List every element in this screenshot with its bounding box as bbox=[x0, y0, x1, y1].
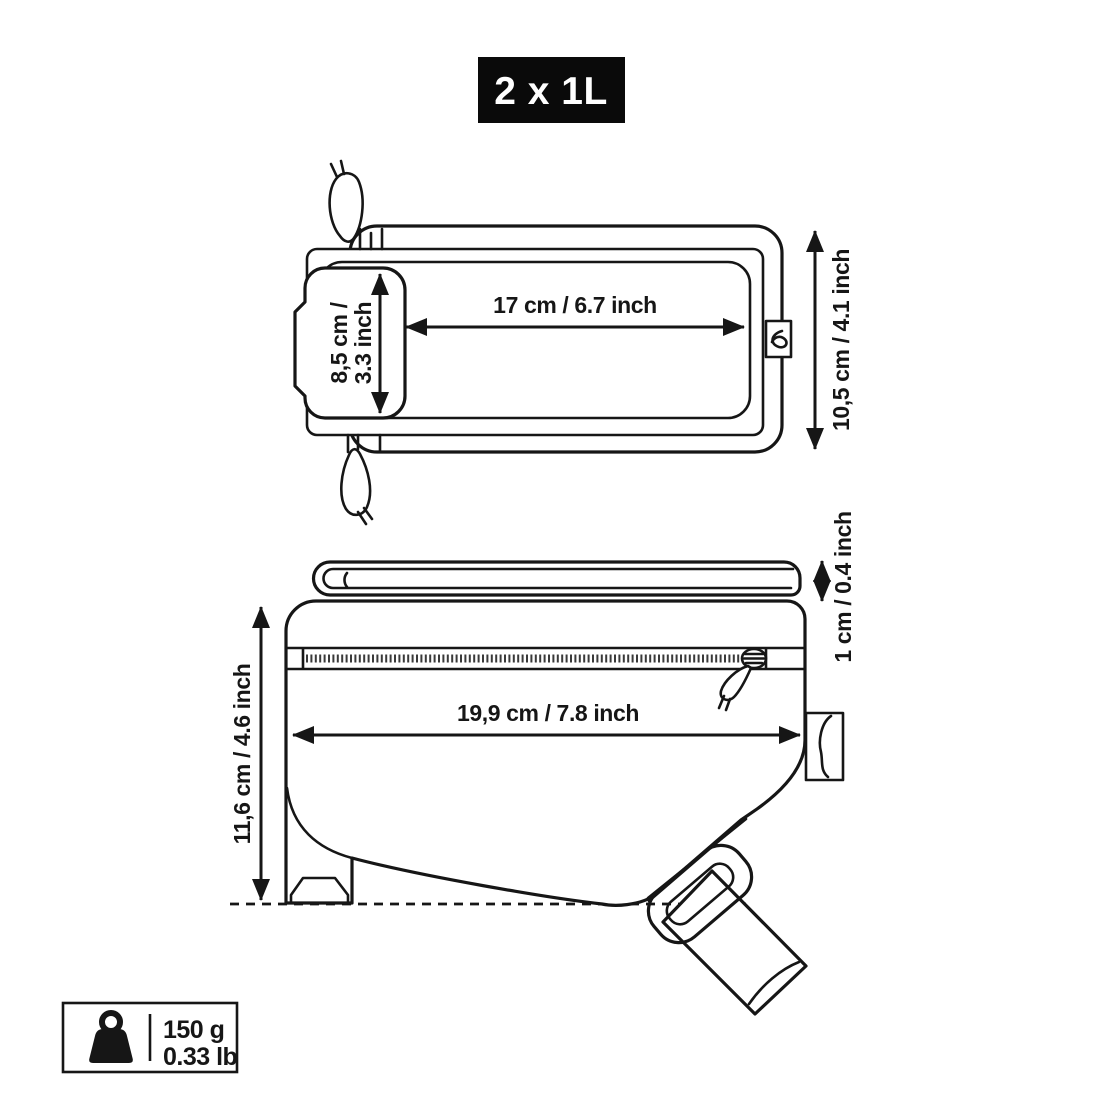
side-height-label: 11,6 cm / 4.6 inch bbox=[229, 664, 255, 845]
roll-top-flap-outer bbox=[314, 562, 801, 595]
weight-imperial-label: 0.33 lb bbox=[163, 1043, 238, 1071]
cord-lock-icon bbox=[330, 173, 363, 241]
zipper-garage-tab bbox=[766, 321, 791, 357]
weight-badge: 150 g 0.33 lb bbox=[63, 1003, 238, 1072]
weight-metric-label: 150 g bbox=[163, 1016, 224, 1044]
flap-height-label: 1 cm / 0.4 inch bbox=[830, 511, 856, 662]
top-view-drawing: 17 cm / 6.7 inch 8,5 cm / 3.3 inch 10,5 … bbox=[295, 161, 854, 524]
side-view-body-outline bbox=[286, 601, 805, 905]
cord-lock-icon bbox=[341, 449, 370, 515]
top-height-label: 10,5 cm / 4.1 inch bbox=[828, 249, 854, 431]
top-width-label: 17 cm / 6.7 inch bbox=[493, 292, 657, 318]
volume-badge: 2 x 1L bbox=[478, 57, 625, 123]
side-view-drawing: 1 cm / 0.4 inch 19,9 cm / 7.8 inch 11,6 … bbox=[229, 511, 856, 1014]
diagram-canvas: 2 x 1L 17 cm / 6.7 inch 8,5 cm / 3.3 inc… bbox=[0, 0, 1100, 1100]
volume-badge-label: 2 x 1L bbox=[494, 70, 608, 113]
side-width-label: 19,9 cm / 7.8 inch bbox=[457, 700, 639, 726]
window-height-label-line2: 3.3 inch bbox=[350, 302, 376, 384]
bike-frame-bag-dimensions-diagram: 2 x 1L 17 cm / 6.7 inch 8,5 cm / 3.3 inc… bbox=[0, 0, 1100, 1100]
window-height-label-line1: 8,5 cm / bbox=[326, 301, 352, 383]
kettlebell-body bbox=[89, 1029, 133, 1063]
